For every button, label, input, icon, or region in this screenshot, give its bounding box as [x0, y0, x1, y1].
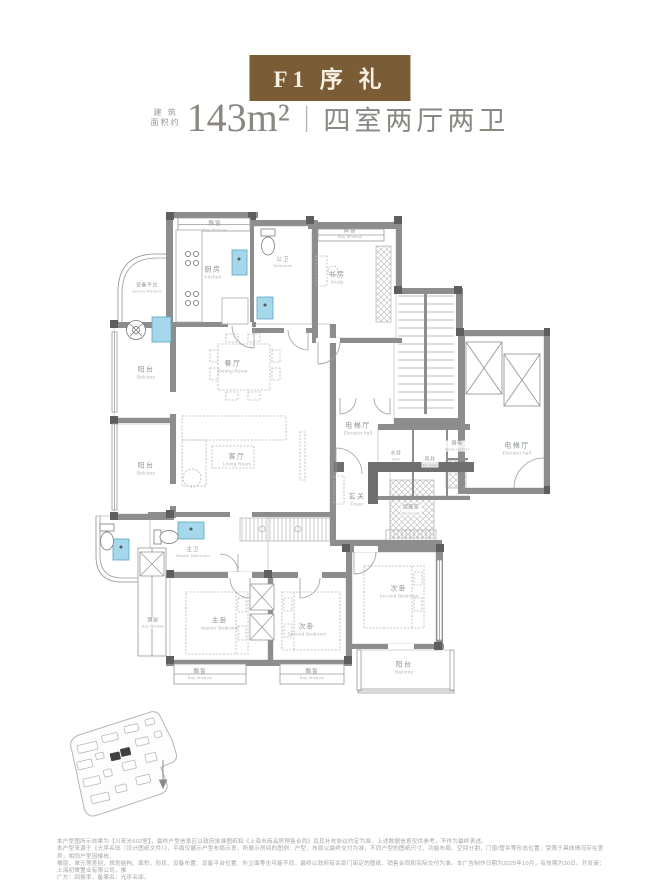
- disclaimer-line: 本户型来源于《光序名邸（设计图纸文件）》，平面仅展示户型布局示意，所展示房间的图…: [57, 846, 605, 861]
- disclaimer-line: 广方：回报率，备案名：光序名邸。: [57, 875, 605, 882]
- disclaimer-line: 楼层、单元等差别，规划结构、面积、形状、设备布置、设备平台位置、外立面等也可能不…: [57, 861, 605, 876]
- floorplan-page: { "header": { "title": "F1 序 礼", "area_l…: [0, 0, 660, 896]
- stairs-icon: [398, 294, 454, 414]
- disclaimer-text: 本户型图所示效果为【川来光602室】，最终户型信息应以政府批准图纸和《上海市商品…: [57, 839, 605, 883]
- site-plan: [66, 708, 185, 817]
- washer-icon: [127, 321, 146, 340]
- floorplan-drawing: [0, 0, 660, 896]
